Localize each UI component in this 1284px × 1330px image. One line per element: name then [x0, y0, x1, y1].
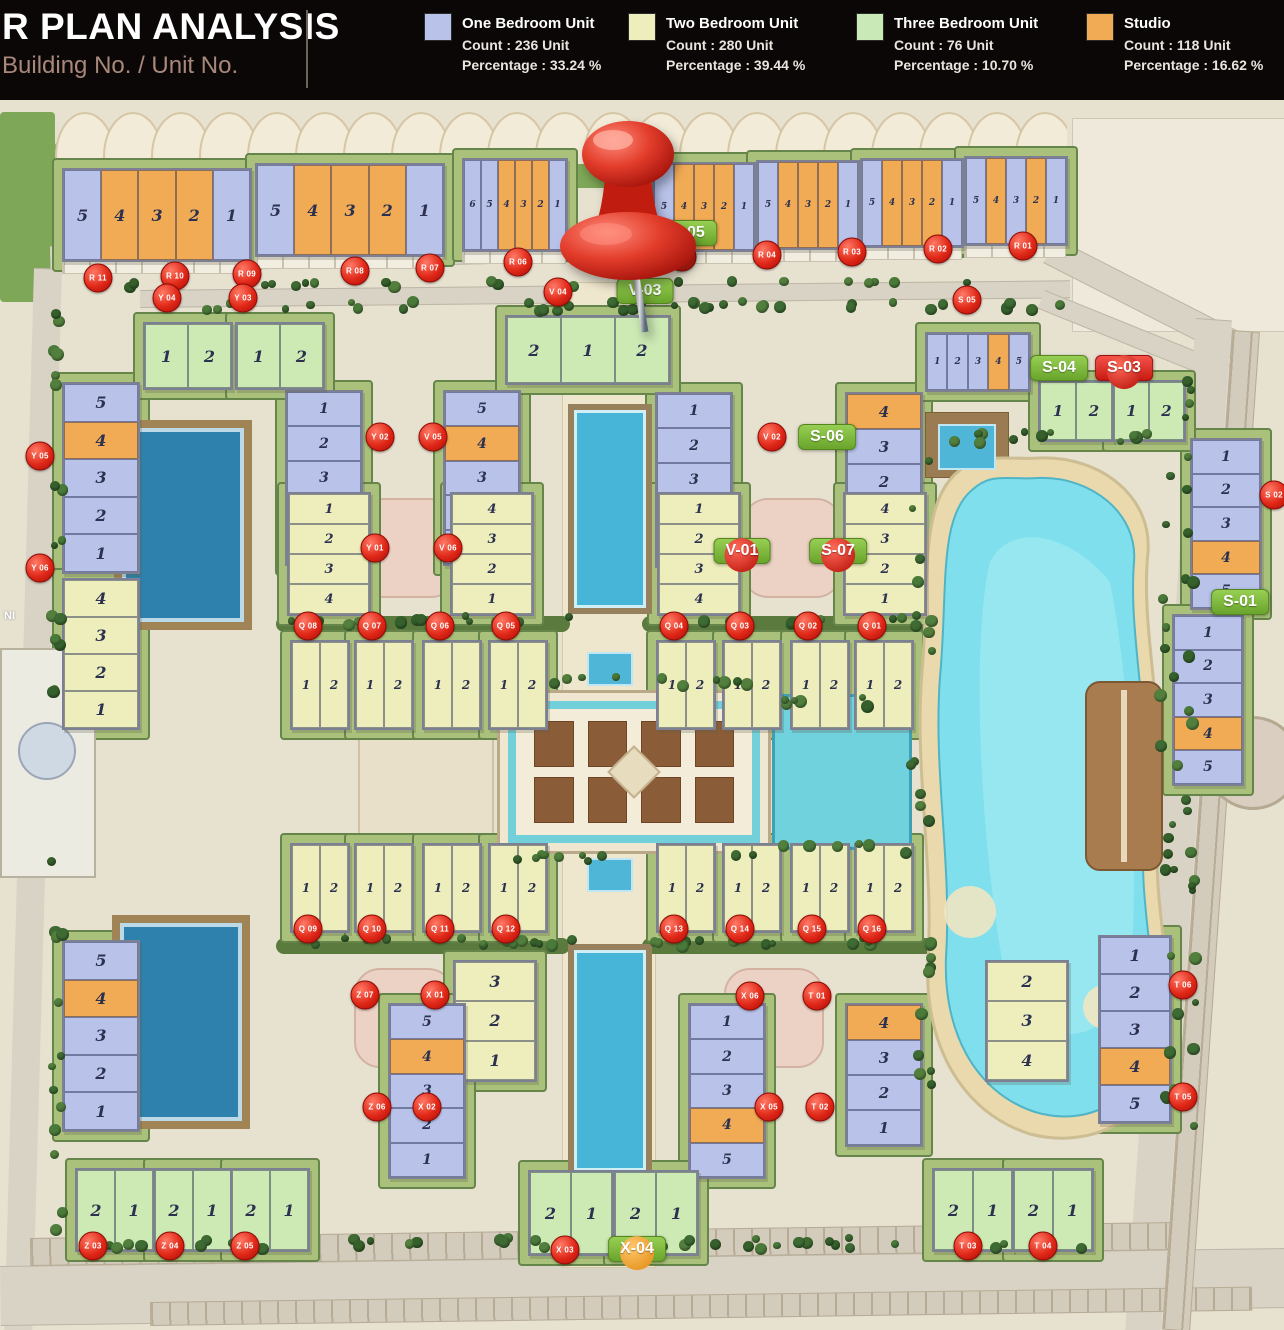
tree: [1189, 952, 1202, 965]
legend-percentage: Percentage : 33.24 %: [462, 55, 601, 75]
tree: [49, 1086, 58, 1095]
tree: [51, 542, 58, 549]
tree: [1182, 485, 1191, 494]
unit-location-marker[interactable]: Z 05: [231, 1232, 260, 1261]
unit-location-marker[interactable]: S 02: [1260, 481, 1284, 510]
unit-location-marker[interactable]: T 02: [806, 1093, 835, 1122]
unit-location-marker[interactable]: T 03: [954, 1232, 983, 1261]
unit-cell: 2: [369, 165, 406, 255]
tree: [698, 615, 711, 628]
tree: [213, 305, 222, 314]
road-name-label: NI: [4, 610, 34, 624]
unit-location-marker[interactable]: Q 04: [660, 612, 689, 641]
tree: [50, 379, 62, 391]
tree: [1129, 431, 1139, 441]
legend-item-three-bedroom: Three Bedroom Unit Count : 76 Unit Perce…: [856, 13, 1038, 75]
unit-location-marker[interactable]: Y 03: [229, 284, 258, 313]
clubhouse-dome: [18, 722, 76, 780]
tree: [407, 296, 419, 308]
unit-cell: 1: [356, 642, 384, 728]
tree: [1183, 650, 1196, 663]
tree: [54, 613, 67, 626]
tree: [48, 1063, 56, 1071]
unit-cell: 1: [792, 642, 820, 728]
unit-cell: 2: [452, 554, 532, 584]
unit-cell: 4: [1192, 541, 1260, 575]
unit-cell: 4: [64, 422, 138, 460]
unit-cell: 4: [390, 1039, 464, 1073]
tree: [938, 299, 949, 310]
tree: [1163, 849, 1173, 859]
unit-cell: 2: [320, 642, 348, 728]
tree: [513, 855, 522, 864]
tree: [381, 278, 390, 287]
unit-cell: 2: [847, 1075, 921, 1110]
unit-cell: 1: [452, 584, 532, 614]
building-cluster: 12: [790, 640, 850, 730]
tree: [1162, 521, 1169, 528]
tree: [713, 676, 720, 683]
tree: [56, 1102, 66, 1112]
building-label-badge[interactable]: V-01: [714, 538, 771, 564]
unit-location-marker[interactable]: Q 10: [358, 915, 387, 944]
unit-cell: 4: [847, 1005, 921, 1040]
unit-cell: 5: [1009, 334, 1029, 390]
tree: [498, 1236, 510, 1248]
unit-cell: 3: [64, 1017, 138, 1055]
unit-cell: 2: [452, 845, 480, 931]
tree: [58, 536, 67, 545]
unit-cell: 2: [1192, 474, 1260, 508]
unit-cell: 1: [64, 691, 138, 728]
unit-cell: 1: [406, 165, 443, 255]
unit-location-marker[interactable]: X 05: [755, 1093, 784, 1122]
axis-fountain-upper: [587, 652, 633, 686]
tree: [111, 1242, 123, 1254]
unit-cell: 3: [138, 170, 175, 260]
unit-location-marker[interactable]: X 01: [421, 981, 450, 1010]
building-label-badge[interactable]: S-04: [1030, 355, 1088, 381]
legend-count: Count : 280 Unit: [666, 35, 805, 55]
planting-bed: [534, 777, 574, 823]
studio-swatch: [1086, 13, 1114, 41]
unit-cell: 4: [294, 165, 331, 255]
unit-location-marker[interactable]: R 06: [504, 248, 533, 277]
legend-name: Two Bedroom Unit: [666, 13, 805, 35]
unit-location-marker[interactable]: Y 01: [361, 534, 390, 563]
unit-cell: 1: [193, 1170, 231, 1250]
unit-location-marker[interactable]: X 03: [551, 1236, 580, 1265]
tree: [1158, 594, 1168, 604]
tree: [779, 277, 788, 286]
tree: [50, 1150, 59, 1159]
unit-location-marker[interactable]: X 06: [736, 982, 765, 1011]
tree: [915, 554, 925, 564]
building-label-badge[interactable]: X-04: [608, 1236, 666, 1262]
tree: [1162, 623, 1170, 631]
unit-location-marker[interactable]: Y 06: [26, 554, 55, 583]
unit-location-marker[interactable]: V 05: [419, 423, 448, 452]
unit-cell: 2: [884, 642, 912, 728]
tree: [516, 935, 528, 947]
unit-cell: 2: [818, 162, 838, 248]
building-cluster: 54321: [62, 168, 252, 262]
unit-location-marker[interactable]: R 11: [84, 264, 113, 293]
legend-name: Three Bedroom Unit: [894, 13, 1038, 35]
tree: [282, 305, 289, 312]
tree: [743, 1241, 754, 1252]
unit-cell: 3: [968, 334, 988, 390]
building-cluster: 54321: [860, 158, 964, 248]
tree: [47, 686, 59, 698]
building-label-badge[interactable]: S-06: [798, 424, 856, 450]
planting-bed: [695, 777, 735, 823]
unit-cell: 4: [778, 162, 798, 248]
tree: [532, 854, 540, 862]
tree: [684, 1235, 695, 1246]
unit-cell: 3: [331, 165, 368, 255]
tree: [54, 998, 63, 1007]
legend-item-two-bedroom: Two Bedroom Unit Count : 280 Unit Percen…: [628, 13, 805, 75]
tree: [306, 301, 314, 309]
legend-name: One Bedroom Unit: [462, 13, 601, 35]
unit-cell: 4: [1100, 1048, 1170, 1085]
courtyard-pool-upper-left: [122, 428, 244, 622]
unit-cell: 3: [455, 962, 535, 1001]
legend-count: Count : 236 Unit: [462, 35, 601, 55]
unit-location-marker[interactable]: Q 11: [426, 915, 455, 944]
tree: [56, 928, 69, 941]
tree: [50, 634, 61, 645]
legend-count: Count : 76 Unit: [894, 35, 1038, 55]
unit-location-marker[interactable]: Q 02: [794, 612, 823, 641]
tree: [889, 615, 897, 623]
unit-location-marker[interactable]: Q 07: [358, 612, 387, 641]
legend-name: Studio: [1124, 13, 1263, 35]
tree: [1182, 414, 1189, 421]
building-cluster: 54321: [255, 163, 445, 257]
tree: [1184, 453, 1192, 461]
unit-location-marker[interactable]: Q 03: [726, 612, 755, 641]
legend-percentage: Percentage : 16.62 %: [1124, 55, 1263, 75]
unit-cell: 2: [64, 497, 138, 535]
unit-location-marker[interactable]: Y 02: [366, 423, 395, 452]
tree: [399, 304, 409, 314]
tree: [900, 847, 912, 859]
unit-cell: 2: [752, 845, 780, 931]
unit-location-marker[interactable]: X 02: [413, 1093, 442, 1122]
unit-location-marker[interactable]: Q 05: [492, 612, 521, 641]
tree: [310, 278, 320, 288]
unit-location-marker[interactable]: R 07: [416, 254, 445, 283]
tree: [49, 1124, 61, 1136]
unit-cell: 5: [64, 942, 138, 980]
tree: [657, 673, 667, 683]
unit-location-marker[interactable]: R 03: [838, 238, 867, 267]
tree: [845, 1243, 855, 1253]
unit-cell: 2: [64, 654, 138, 691]
unit-cell: 2: [1100, 974, 1170, 1011]
unit-cell: 5: [1100, 1085, 1170, 1122]
two-bedroom-swatch: [628, 13, 656, 41]
tree: [1172, 1008, 1184, 1020]
unit-location-marker[interactable]: Q 12: [492, 915, 521, 944]
unit-cell: 2: [280, 324, 323, 388]
unit-cell: 5: [64, 384, 138, 422]
tree: [654, 938, 664, 948]
unit-cell: 4: [452, 494, 532, 524]
unit-location-marker[interactable]: Q 16: [858, 915, 887, 944]
unit-cell: 4: [988, 334, 1008, 390]
tree: [554, 852, 564, 862]
title-block: R PLAN ANALYSIS Building No. / Unit No.: [2, 6, 302, 80]
unit-location-marker[interactable]: V 02: [758, 423, 787, 452]
unit-cell: 2: [320, 845, 348, 931]
tree: [1026, 304, 1038, 316]
axis-pool-lower: [574, 950, 646, 1171]
unit-cell: 2: [1076, 382, 1112, 440]
tree: [1185, 399, 1194, 408]
unit-cell: 5: [64, 170, 101, 260]
unit-cell: 4: [64, 580, 138, 617]
building-cluster: 4321: [62, 578, 140, 730]
unit-cell: 1: [734, 164, 754, 250]
unit-location-marker[interactable]: Q 08: [294, 612, 323, 641]
tree: [562, 674, 572, 684]
tree: [1154, 689, 1167, 702]
unit-location-marker[interactable]: R 08: [341, 257, 370, 286]
page-subtitle: Building No. / Unit No.: [2, 52, 302, 80]
tree: [915, 1008, 928, 1021]
unit-cell: 4: [986, 158, 1006, 244]
unit-cell: 2: [532, 160, 549, 250]
unit-location-marker[interactable]: Z 04: [156, 1232, 185, 1261]
tree: [1164, 1046, 1176, 1058]
tree: [343, 619, 355, 631]
unit-cell: 5: [481, 160, 498, 250]
unit-cell: 5: [257, 165, 294, 255]
unit-cell: 1: [1174, 616, 1242, 650]
tree: [974, 437, 986, 449]
tree: [202, 305, 212, 315]
unit-location-marker[interactable]: Q 14: [726, 915, 755, 944]
unit-cell: 4: [64, 980, 138, 1018]
tree: [1169, 672, 1178, 681]
building-label-badge[interactable]: S-07: [809, 538, 867, 564]
building-cluster: 12: [143, 322, 233, 390]
building-cluster: 12345: [925, 332, 1031, 392]
unit-cell: 1: [856, 642, 884, 728]
tree: [793, 1237, 804, 1248]
unit-cell: 1: [1046, 158, 1066, 244]
unit-location-marker[interactable]: T 05: [1169, 1083, 1198, 1112]
tree: [677, 680, 689, 692]
unit-cell: 3: [64, 459, 138, 497]
tree: [889, 277, 900, 288]
unit-cell: 1: [942, 160, 962, 246]
unit-cell: 1: [1100, 937, 1170, 974]
unit-cell: 5: [862, 160, 882, 246]
unit-cell: 5: [390, 1005, 464, 1039]
building-cluster: 4321: [450, 492, 534, 616]
tree: [913, 1050, 923, 1060]
legend-percentage: Percentage : 10.70 %: [894, 55, 1038, 75]
unit-cell: 1: [115, 1170, 153, 1250]
unit-location-marker[interactable]: R 01: [1009, 232, 1038, 261]
site-plan-map[interactable]: NI 5432154321654321543215432154321543215…: [0, 100, 1284, 1330]
tree: [129, 278, 139, 288]
tree: [395, 616, 407, 628]
unit-cell: 3: [987, 1001, 1067, 1040]
unit-cell: 1: [270, 1170, 308, 1250]
unit-cell: 2: [922, 160, 942, 246]
unit-cell: 2: [752, 642, 780, 728]
unit-location-marker[interactable]: T 06: [1169, 971, 1198, 1000]
unit-location-marker[interactable]: Z 07: [351, 981, 380, 1010]
tree: [846, 302, 856, 312]
building-cluster: 1234: [287, 492, 371, 616]
unit-location-marker[interactable]: V 06: [434, 534, 463, 563]
unit-cell: 1: [657, 394, 731, 428]
unit-cell: 2: [820, 845, 848, 931]
unit-location-marker[interactable]: Q 13: [660, 915, 689, 944]
tree: [863, 839, 875, 851]
unit-cell: 4: [289, 584, 369, 614]
tree: [565, 613, 573, 621]
tree: [1036, 430, 1048, 442]
unit-cell: 2: [690, 1039, 764, 1073]
tree: [135, 1240, 147, 1252]
tree: [912, 576, 924, 588]
building-cluster: 12: [854, 640, 914, 730]
tree: [1188, 882, 1196, 890]
unit-cell: 1: [1192, 440, 1260, 474]
unit-cell: 2: [947, 334, 967, 390]
unit-location-marker[interactable]: Q 15: [798, 915, 827, 944]
building-cluster: 54321: [756, 160, 860, 250]
unit-cell: 1: [289, 494, 369, 524]
unit-location-marker[interactable]: Q 06: [426, 612, 455, 641]
tree: [731, 850, 741, 860]
unit-location-marker[interactable]: S 05: [953, 286, 982, 315]
building-cluster: 12: [290, 640, 350, 730]
unit-cell: 2: [188, 324, 231, 388]
unit-cell: 2: [1026, 158, 1046, 244]
tree: [1004, 298, 1016, 310]
unit-cell: 3: [1192, 507, 1260, 541]
unit-cell: 1: [237, 324, 280, 388]
building-cluster: 234: [985, 960, 1069, 1082]
tree: [928, 647, 936, 655]
unit-cell: 2: [64, 1055, 138, 1093]
building-cluster: 12345: [1190, 438, 1262, 610]
building-label-badge[interactable]: S-01: [1211, 589, 1269, 615]
unit-cell: 3: [690, 1074, 764, 1108]
unit-location-marker[interactable]: R 04: [753, 241, 782, 270]
tree: [1167, 952, 1175, 960]
unit-cell: 1: [64, 1092, 138, 1130]
tree: [825, 1237, 834, 1246]
unit-location-marker[interactable]: R 02: [924, 235, 953, 264]
unit-cell: 2: [518, 642, 546, 728]
unit-cell: 1: [287, 392, 361, 426]
tree: [612, 673, 619, 680]
tree: [719, 300, 728, 309]
tree: [906, 760, 916, 770]
tree: [123, 1239, 134, 1250]
page-title: R PLAN ANALYSIS: [2, 6, 302, 48]
tree: [597, 851, 607, 861]
unit-location-marker[interactable]: Z 06: [363, 1093, 392, 1122]
tree: [353, 303, 364, 314]
tree: [268, 280, 276, 288]
unit-location-marker[interactable]: T 04: [1029, 1232, 1058, 1261]
unit-cell: 2: [452, 642, 480, 728]
tree: [752, 1235, 760, 1243]
unit-location-marker[interactable]: Q 09: [294, 915, 323, 944]
tree: [51, 309, 61, 319]
unit-cell: 2: [289, 524, 369, 554]
tree: [1190, 1122, 1198, 1130]
building-label-badge[interactable]: S-03: [1095, 355, 1153, 381]
tree: [1160, 644, 1170, 654]
unit-cell: 4: [987, 1041, 1067, 1080]
unit-location-marker[interactable]: Q 01: [858, 612, 887, 641]
tree: [549, 678, 560, 689]
tree: [536, 940, 544, 948]
unit-cell: 2: [1149, 382, 1184, 440]
unit-cell: 1: [213, 170, 250, 260]
unit-cell: 3: [798, 162, 818, 248]
unit-cell: 2: [384, 845, 412, 931]
unit-cell: 1: [847, 1110, 921, 1145]
tree: [803, 840, 816, 853]
unit-cell: 3: [289, 554, 369, 584]
unit-location-marker[interactable]: Z 03: [79, 1232, 108, 1261]
three-bedroom-swatch: [856, 13, 884, 41]
legend-percentage: Percentage : 39.44 %: [666, 55, 805, 75]
tree: [844, 277, 853, 286]
tree: [567, 935, 577, 945]
unit-cell: 3: [902, 160, 922, 246]
unit-cell: 3: [445, 461, 519, 495]
unit-cell: 3: [64, 617, 138, 654]
unit-location-marker[interactable]: Y 05: [26, 442, 55, 471]
tree: [925, 615, 937, 627]
unit-cell: 1: [838, 162, 858, 248]
map-pin[interactable]: [548, 114, 718, 338]
unit-cell: 4: [882, 160, 902, 246]
master-plan-screen: R PLAN ANALYSIS Building No. / Unit No. …: [0, 0, 1284, 1330]
unit-cell: 2: [455, 1001, 535, 1040]
unit-cell: 1: [845, 584, 925, 614]
unit-cell: 3: [847, 1040, 921, 1075]
unit-cell: 1: [292, 642, 320, 728]
unit-cell: 1: [1053, 1170, 1092, 1250]
tree: [1187, 386, 1195, 394]
unit-cell: 5: [1174, 750, 1242, 784]
axis-fountain-lower: [587, 858, 633, 892]
tree: [462, 612, 469, 619]
tree: [546, 939, 559, 952]
tree: [889, 298, 897, 306]
unit-location-marker[interactable]: T 01: [803, 982, 832, 1011]
tree: [756, 301, 768, 313]
unit-cell: 5: [758, 162, 778, 248]
unit-cell: 1: [64, 534, 138, 572]
unit-cell: 2: [176, 170, 213, 260]
unit-location-marker[interactable]: Y 04: [153, 284, 182, 313]
